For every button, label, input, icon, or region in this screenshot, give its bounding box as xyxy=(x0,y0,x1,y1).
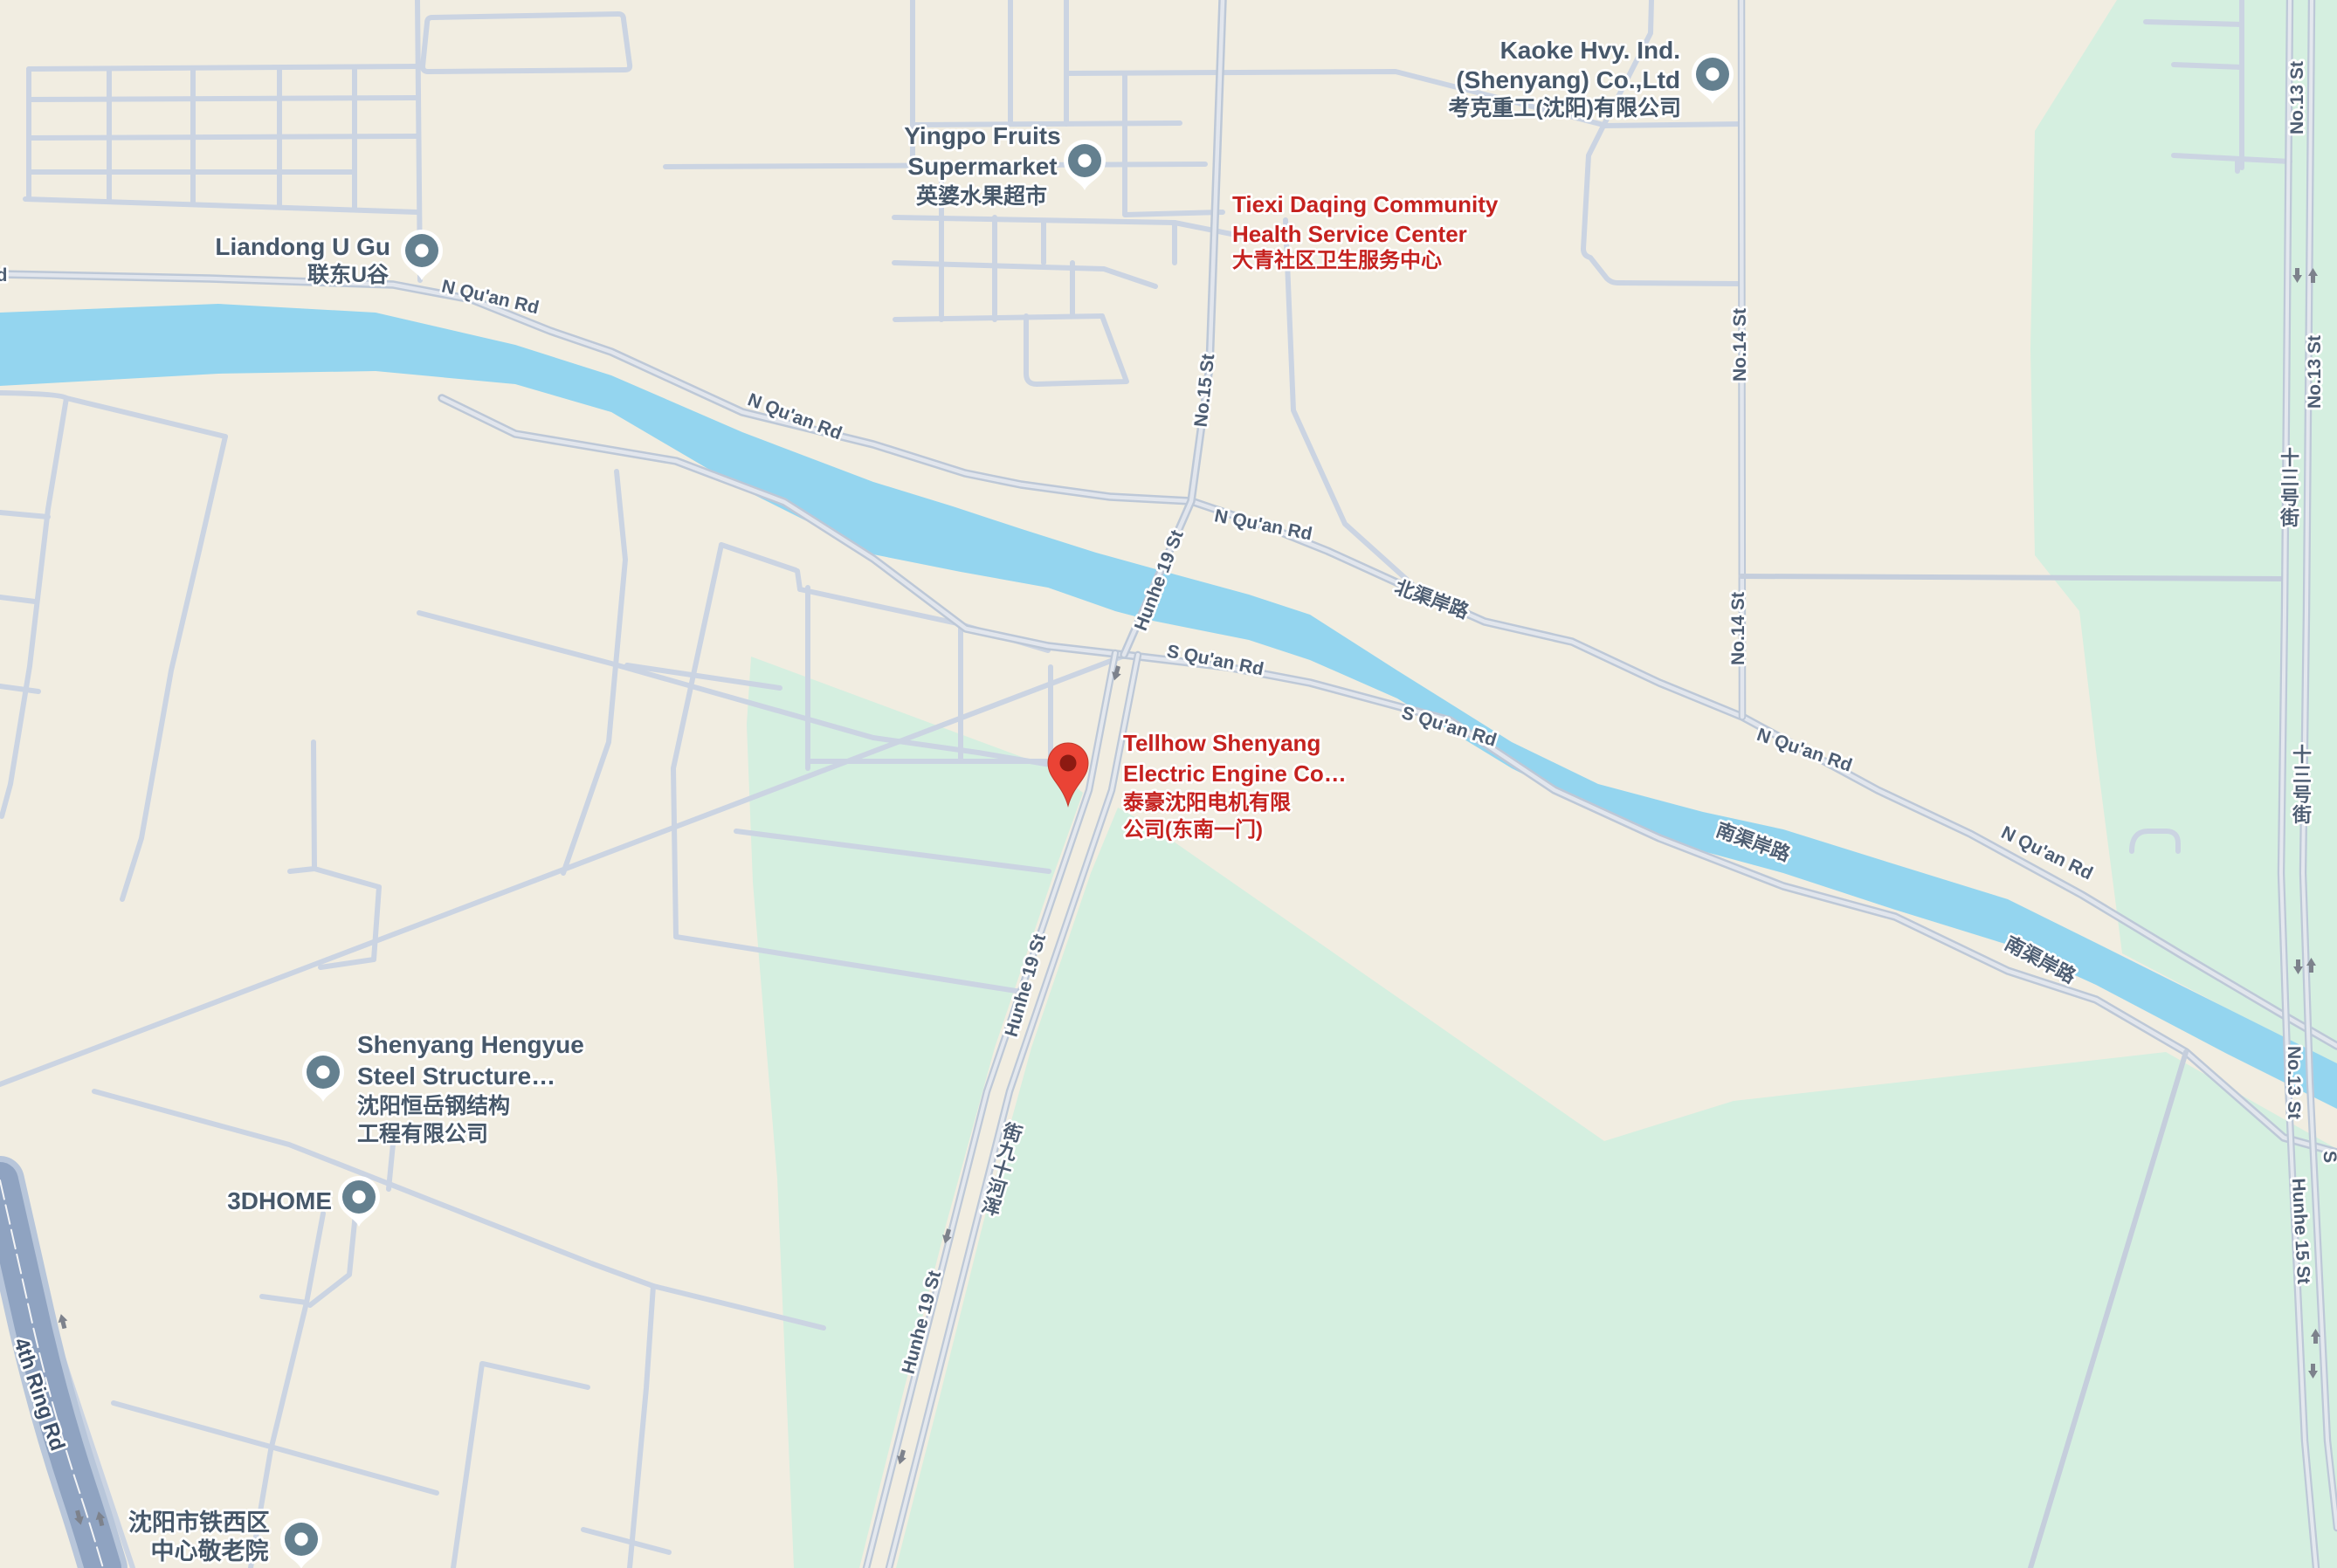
svg-text:Tellhow Shenyang: Tellhow Shenyang xyxy=(1123,730,1320,756)
svg-text:No.13 St: No.13 St xyxy=(2287,61,2307,134)
svg-text:No.14 St: No.14 St xyxy=(1728,592,1748,665)
svg-text:Yingpo Fruits: Yingpo Fruits xyxy=(904,122,1060,149)
svg-text:沈阳市铁西区: 沈阳市铁西区 xyxy=(128,1509,270,1536)
svg-text:No.13 St: No.13 St xyxy=(2305,335,2325,409)
svg-text:大青社区卫生服务中心: 大青社区卫生服务中心 xyxy=(1232,248,1442,272)
svg-text:联东U谷: 联东U谷 xyxy=(307,262,389,287)
svg-text:No.13 St: No.13 St xyxy=(2284,1046,2304,1119)
svg-text:沈阳恒岳钢结构: 沈阳恒岳钢结构 xyxy=(357,1094,510,1118)
svg-text:(Shenyang) Co.,Ltd: (Shenyang) Co.,Ltd xyxy=(1456,66,1680,93)
svg-text:Shenyang Hengyue: Shenyang Hengyue xyxy=(357,1031,584,1058)
svg-text:Liandong U Gu: Liandong U Gu xyxy=(215,233,390,260)
svg-text:工程有限公司: 工程有限公司 xyxy=(357,1122,488,1146)
svg-text:Kaoke Hvy. Ind.: Kaoke Hvy. Ind. xyxy=(1500,37,1680,64)
svg-text:Electric Engine Co…: Electric Engine Co… xyxy=(1123,760,1347,787)
svg-text:泰豪沈阳电机有限: 泰豪沈阳电机有限 xyxy=(1123,790,1291,815)
svg-text:英婆水果超市: 英婆水果超市 xyxy=(916,183,1047,209)
svg-text:Supermarket: Supermarket xyxy=(907,153,1057,180)
svg-text:S: S xyxy=(2320,1150,2337,1163)
svg-text:中心敬老院: 中心敬老院 xyxy=(151,1537,269,1565)
svg-text:十三号街: 十三号街 xyxy=(2279,447,2299,529)
svg-text:考克重工(沈阳)有限公司: 考克重工(沈阳)有限公司 xyxy=(1448,96,1681,120)
svg-text:十三号街: 十三号街 xyxy=(2292,744,2312,826)
svg-text:3DHOME: 3DHOME xyxy=(227,1187,332,1214)
svg-text:公司(东南一门): 公司(东南一门) xyxy=(1123,817,1263,842)
svg-text:Steel Structure…: Steel Structure… xyxy=(357,1063,555,1090)
svg-text:d: d xyxy=(0,265,7,285)
svg-text:Tiexi Daqing Community: Tiexi Daqing Community xyxy=(1232,191,1499,217)
svg-text:No.14 St: No.14 St xyxy=(1730,308,1750,382)
svg-text:Health Service Center: Health Service Center xyxy=(1232,221,1467,247)
